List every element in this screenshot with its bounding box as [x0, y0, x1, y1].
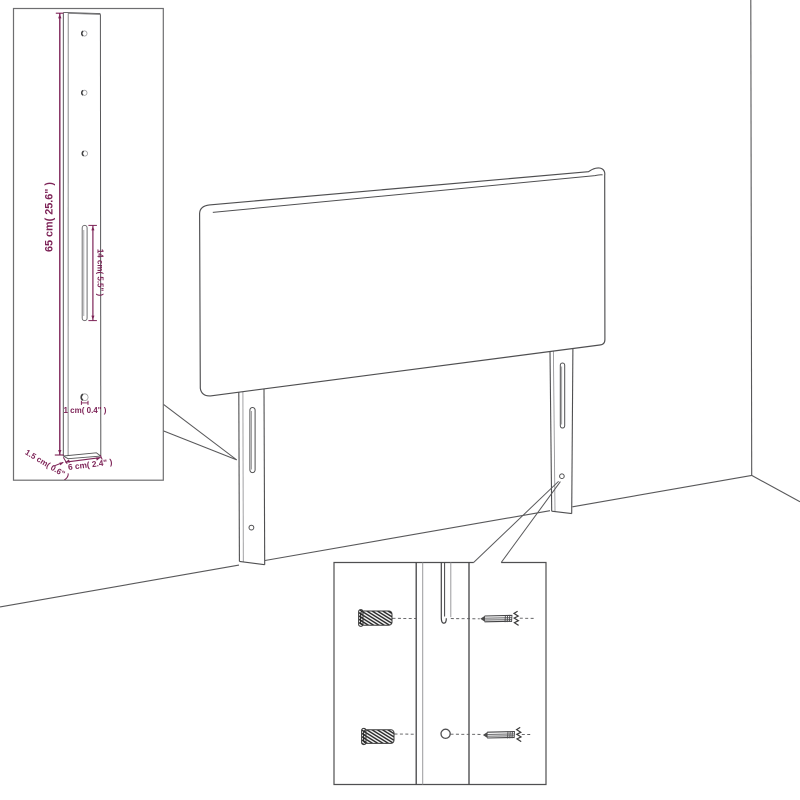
svg-text:14 cm( 5.5" ): 14 cm( 5.5" ) — [95, 249, 104, 297]
svg-text:65 cm( 25.6" ): 65 cm( 25.6" ) — [44, 182, 56, 252]
svg-text:1 cm( 0.4" ): 1 cm( 0.4" ) — [64, 406, 107, 415]
